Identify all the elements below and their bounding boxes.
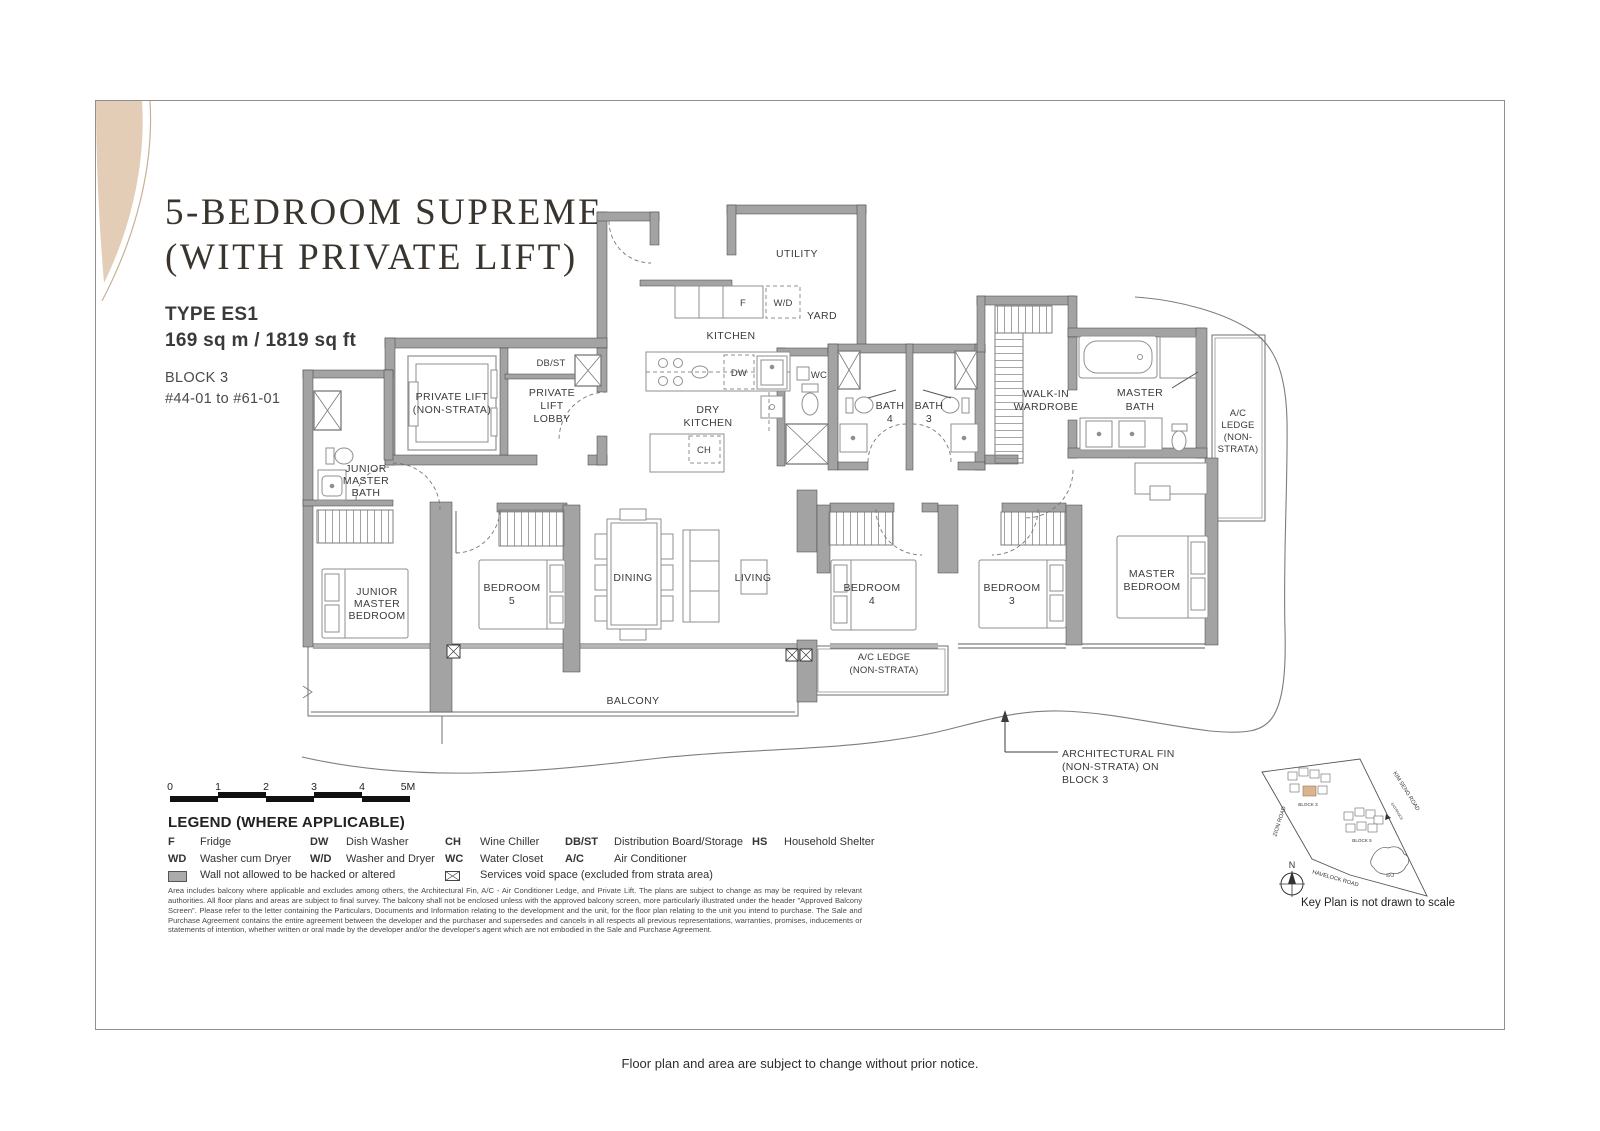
legend-abbr: W/D [310, 853, 331, 865]
legend-abbr: A/C [565, 853, 584, 865]
label-bath3-1: BATH [915, 400, 944, 412]
label-bed5-1: BEDROOM [483, 582, 540, 594]
label-ac-right-4: STRATA) [1218, 444, 1259, 455]
label-ac-right-2: LEDGE [1221, 420, 1254, 431]
legend-abbr: HS [752, 836, 767, 848]
scale-bar: 0 1 2 3 4 5M [167, 781, 415, 802]
bedroom5-bed [479, 560, 565, 629]
label-bath3-2: 3 [926, 413, 932, 425]
label-fridge: F [740, 298, 746, 309]
label-yard: YARD [807, 310, 837, 322]
services-void-boxes [447, 645, 812, 661]
label-water-closet: WC [811, 370, 827, 381]
north-label: N [1289, 860, 1296, 870]
room-labels: UTILITY YARD KITCHEN DRY KITCHEN F W/D D… [343, 248, 1258, 707]
fin-label-line1: ARCHITECTURAL FIN [1062, 748, 1175, 760]
label-bed4-1: BEDROOM [843, 582, 900, 594]
label-jm-bath-3: BATH [352, 487, 381, 499]
legend-services-note: Services void space (excluded from strat… [480, 869, 713, 881]
master-desk [1135, 463, 1207, 500]
keyplan-saj-label: SAJ [1386, 873, 1394, 878]
scale-2: 2 [263, 781, 269, 793]
scale-3: 3 [311, 781, 317, 793]
floorplan-page: 5-BEDROOM SUPREME (WITH PRIVATE LIFT) TY… [0, 0, 1600, 1131]
key-plan: BLOCK 3 BLOCK 5 SAJ ZION ROAD KIM SENG R… [1262, 759, 1427, 897]
legend-abbr: F [168, 836, 175, 848]
label-wine-chiller: CH [697, 445, 711, 456]
label-living: LIVING [735, 572, 772, 584]
bedroom3-bed [979, 560, 1066, 628]
disclaimer-text: Area includes balcony where applicable a… [168, 886, 862, 935]
label-bath4-2: 4 [887, 413, 893, 425]
label-master-bed-1: MASTER [1129, 568, 1175, 580]
label-private-lift-1: PRIVATE LIFT [416, 391, 489, 403]
label-dining: DINING [613, 572, 652, 584]
legend-abbr: WC [445, 853, 463, 865]
legend-abbr: DW [310, 836, 328, 848]
label-dry-kitchen-2: KITCHEN [684, 417, 733, 429]
fin-label-line3: BLOCK 3 [1062, 774, 1108, 786]
label-kitchen: KITCHEN [707, 330, 756, 342]
label-washer-dryer: W/D [773, 298, 792, 309]
scale-1: 1 [215, 781, 221, 793]
keyplan-entrance-arrow [1385, 814, 1391, 820]
label-jm-bath-1: JUNIOR [345, 463, 386, 475]
scale-4: 4 [359, 781, 365, 793]
legend-abbr: CH [445, 836, 461, 848]
services-void-icon [445, 871, 460, 881]
footer-note: Floor plan and area are subject to chang… [0, 1056, 1600, 1071]
label-wiw-2: WARDROBE [1014, 401, 1079, 413]
keyplan-note: Key Plan is not drawn to scale [1268, 897, 1488, 909]
label-jm-bed-1: JUNIOR [356, 586, 397, 598]
label-bed3-1: BEDROOM [983, 582, 1040, 594]
legend-desc: Distribution Board/Storage [614, 836, 743, 848]
label-utility: UTILITY [776, 248, 818, 260]
label-ac-right-3: (NON- [1224, 432, 1252, 443]
walls [303, 205, 1218, 712]
label-ac-bottom-2: (NON-STRATA) [849, 665, 918, 676]
label-dry-kitchen-1: DRY [696, 404, 719, 416]
legend-abbr: DB/ST [565, 836, 598, 848]
label-bed5-2: 5 [509, 595, 515, 607]
label-master-bed-2: BEDROOM [1123, 581, 1180, 593]
label-db-st: DB/ST [537, 358, 566, 369]
label-balcony: BALCONY [607, 695, 660, 707]
label-bed3-2: 3 [1009, 595, 1015, 607]
floor-plan: ARCHITECTURAL FIN (NON-STRATA) ON BLOCK … [0, 0, 1600, 1131]
kitchen-counter [646, 352, 790, 391]
legend-abbr: WD [168, 853, 186, 865]
label-lift-lobby-1: PRIVATE [529, 387, 575, 399]
scale-5m: 5M [401, 781, 416, 793]
label-master-bath-2: BATH [1126, 401, 1155, 413]
legend-desc: Fridge [200, 836, 231, 848]
legend-desc: Dish Washer [346, 836, 409, 848]
legend: LEGEND (WHERE APPLICABLE) F Fridge DW Di… [168, 814, 888, 888]
legend-title: LEGEND (WHERE APPLICABLE) [168, 814, 405, 831]
label-jm-bed-2: MASTER [354, 598, 400, 610]
legend-desc: Washer cum Dryer [200, 853, 291, 865]
legend-wall-note: Wall not allowed to be hacked or altered [200, 869, 395, 881]
legend-desc: Water Closet [480, 853, 543, 865]
label-bath4-1: BATH [876, 400, 905, 412]
label-master-bath-1: MASTER [1117, 387, 1163, 399]
label-jm-bath-2: MASTER [343, 475, 389, 487]
keyplan-zion-road: ZION ROAD [1272, 806, 1287, 837]
label-bed4-2: 4 [869, 595, 875, 607]
label-ac-bottom-1: A/C LEDGE [858, 652, 910, 663]
label-wiw-1: WALK-IN [1023, 388, 1069, 400]
legend-desc: Washer and Dryer [346, 853, 435, 865]
scale-0: 0 [167, 781, 173, 793]
keyplan-block5-label: BLOCK 5 [1352, 838, 1372, 843]
legend-desc: Household Shelter [784, 836, 875, 848]
private-lift-car [408, 356, 497, 450]
fin-label-line2: (NON-STRATA) ON [1062, 761, 1159, 773]
label-dishwasher: DW [731, 368, 747, 379]
label-ac-right-1: A/C [1230, 408, 1246, 419]
legend-desc: Wine Chiller [480, 836, 539, 848]
label-lift-lobby-3: LOBBY [533, 413, 570, 425]
keyplan-block3-label: BLOCK 3 [1298, 802, 1318, 807]
north-compass: N [1279, 860, 1305, 897]
keyplan-entrance-label: ENTRANCE [1390, 802, 1404, 821]
label-lift-lobby-2: LIFT [540, 400, 563, 412]
legend-desc: Air Conditioner [614, 853, 687, 865]
label-private-lift-2: (NON-STRATA) [413, 404, 492, 416]
wall-swatch-icon [168, 871, 187, 882]
label-jm-bed-3: BEDROOM [348, 610, 405, 622]
keyplan-havelock-road: HAVELOCK ROAD [1311, 870, 1359, 889]
